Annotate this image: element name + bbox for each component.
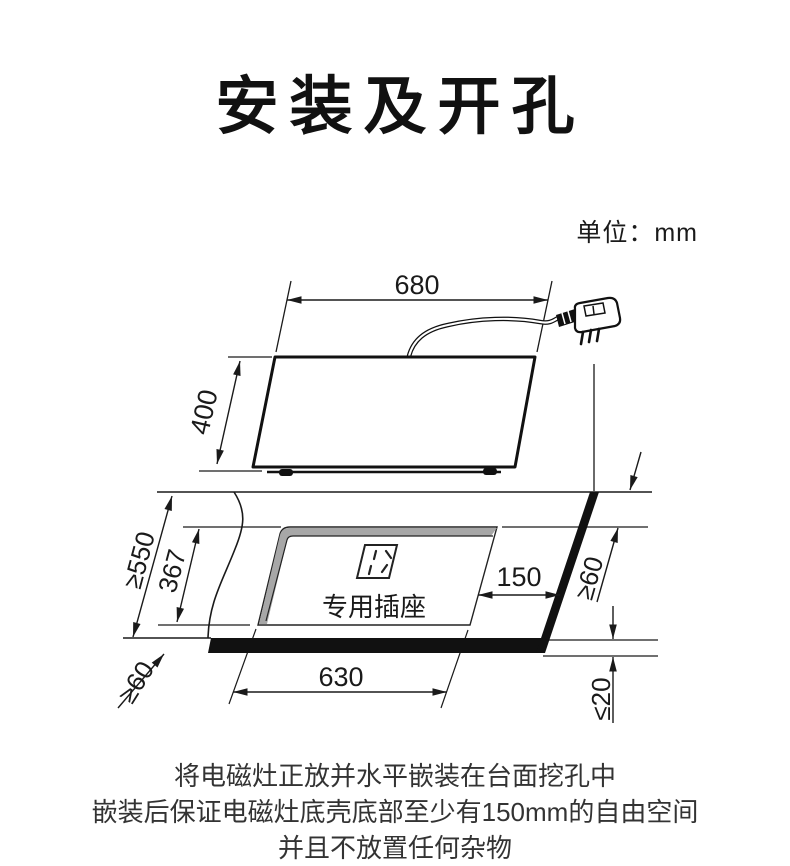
dim-680-label: 680 — [394, 270, 439, 300]
page-root: { "title": "安装及开孔", "unit_label": "单位：mm… — [0, 0, 790, 855]
counter-front-edge — [208, 638, 546, 653]
installation-note: 将电磁灶正放并水平嵌装在台面挖孔中 嵌装后保证电磁灶底壳底部至少有150mm的自… — [0, 758, 790, 866]
socket-icon — [357, 545, 397, 578]
power-plug-icon — [556, 298, 620, 344]
installation-note-line2: 嵌装后保证电磁灶底壳底部至少有150mm的自由空间 — [0, 794, 790, 830]
installation-note-line1: 将电磁灶正放并水平嵌装在台面挖孔中 — [0, 758, 790, 794]
dim-367-label: 367 — [152, 546, 192, 596]
break-line — [208, 492, 243, 638]
installation-diagram: 专用插座 150 630 ≥550 367 ≥60 ≥60 ≤20 — [0, 0, 790, 855]
dim-400-label: 400 — [184, 387, 223, 438]
cooktop-top-panel — [253, 357, 535, 467]
power-cord-icon — [409, 318, 558, 356]
socket-label: 专用插座 — [322, 592, 426, 622]
installation-note-line3: 并且不放置任何杂物 — [0, 830, 790, 866]
dim-630-label: 630 — [318, 662, 363, 692]
cooktop-graphic: 680 400 — [184, 270, 620, 476]
dim-60-left-label: ≥60 — [112, 656, 160, 709]
dim-20-label: ≤20 — [586, 677, 616, 720]
dim-150-label: 150 — [496, 562, 541, 592]
